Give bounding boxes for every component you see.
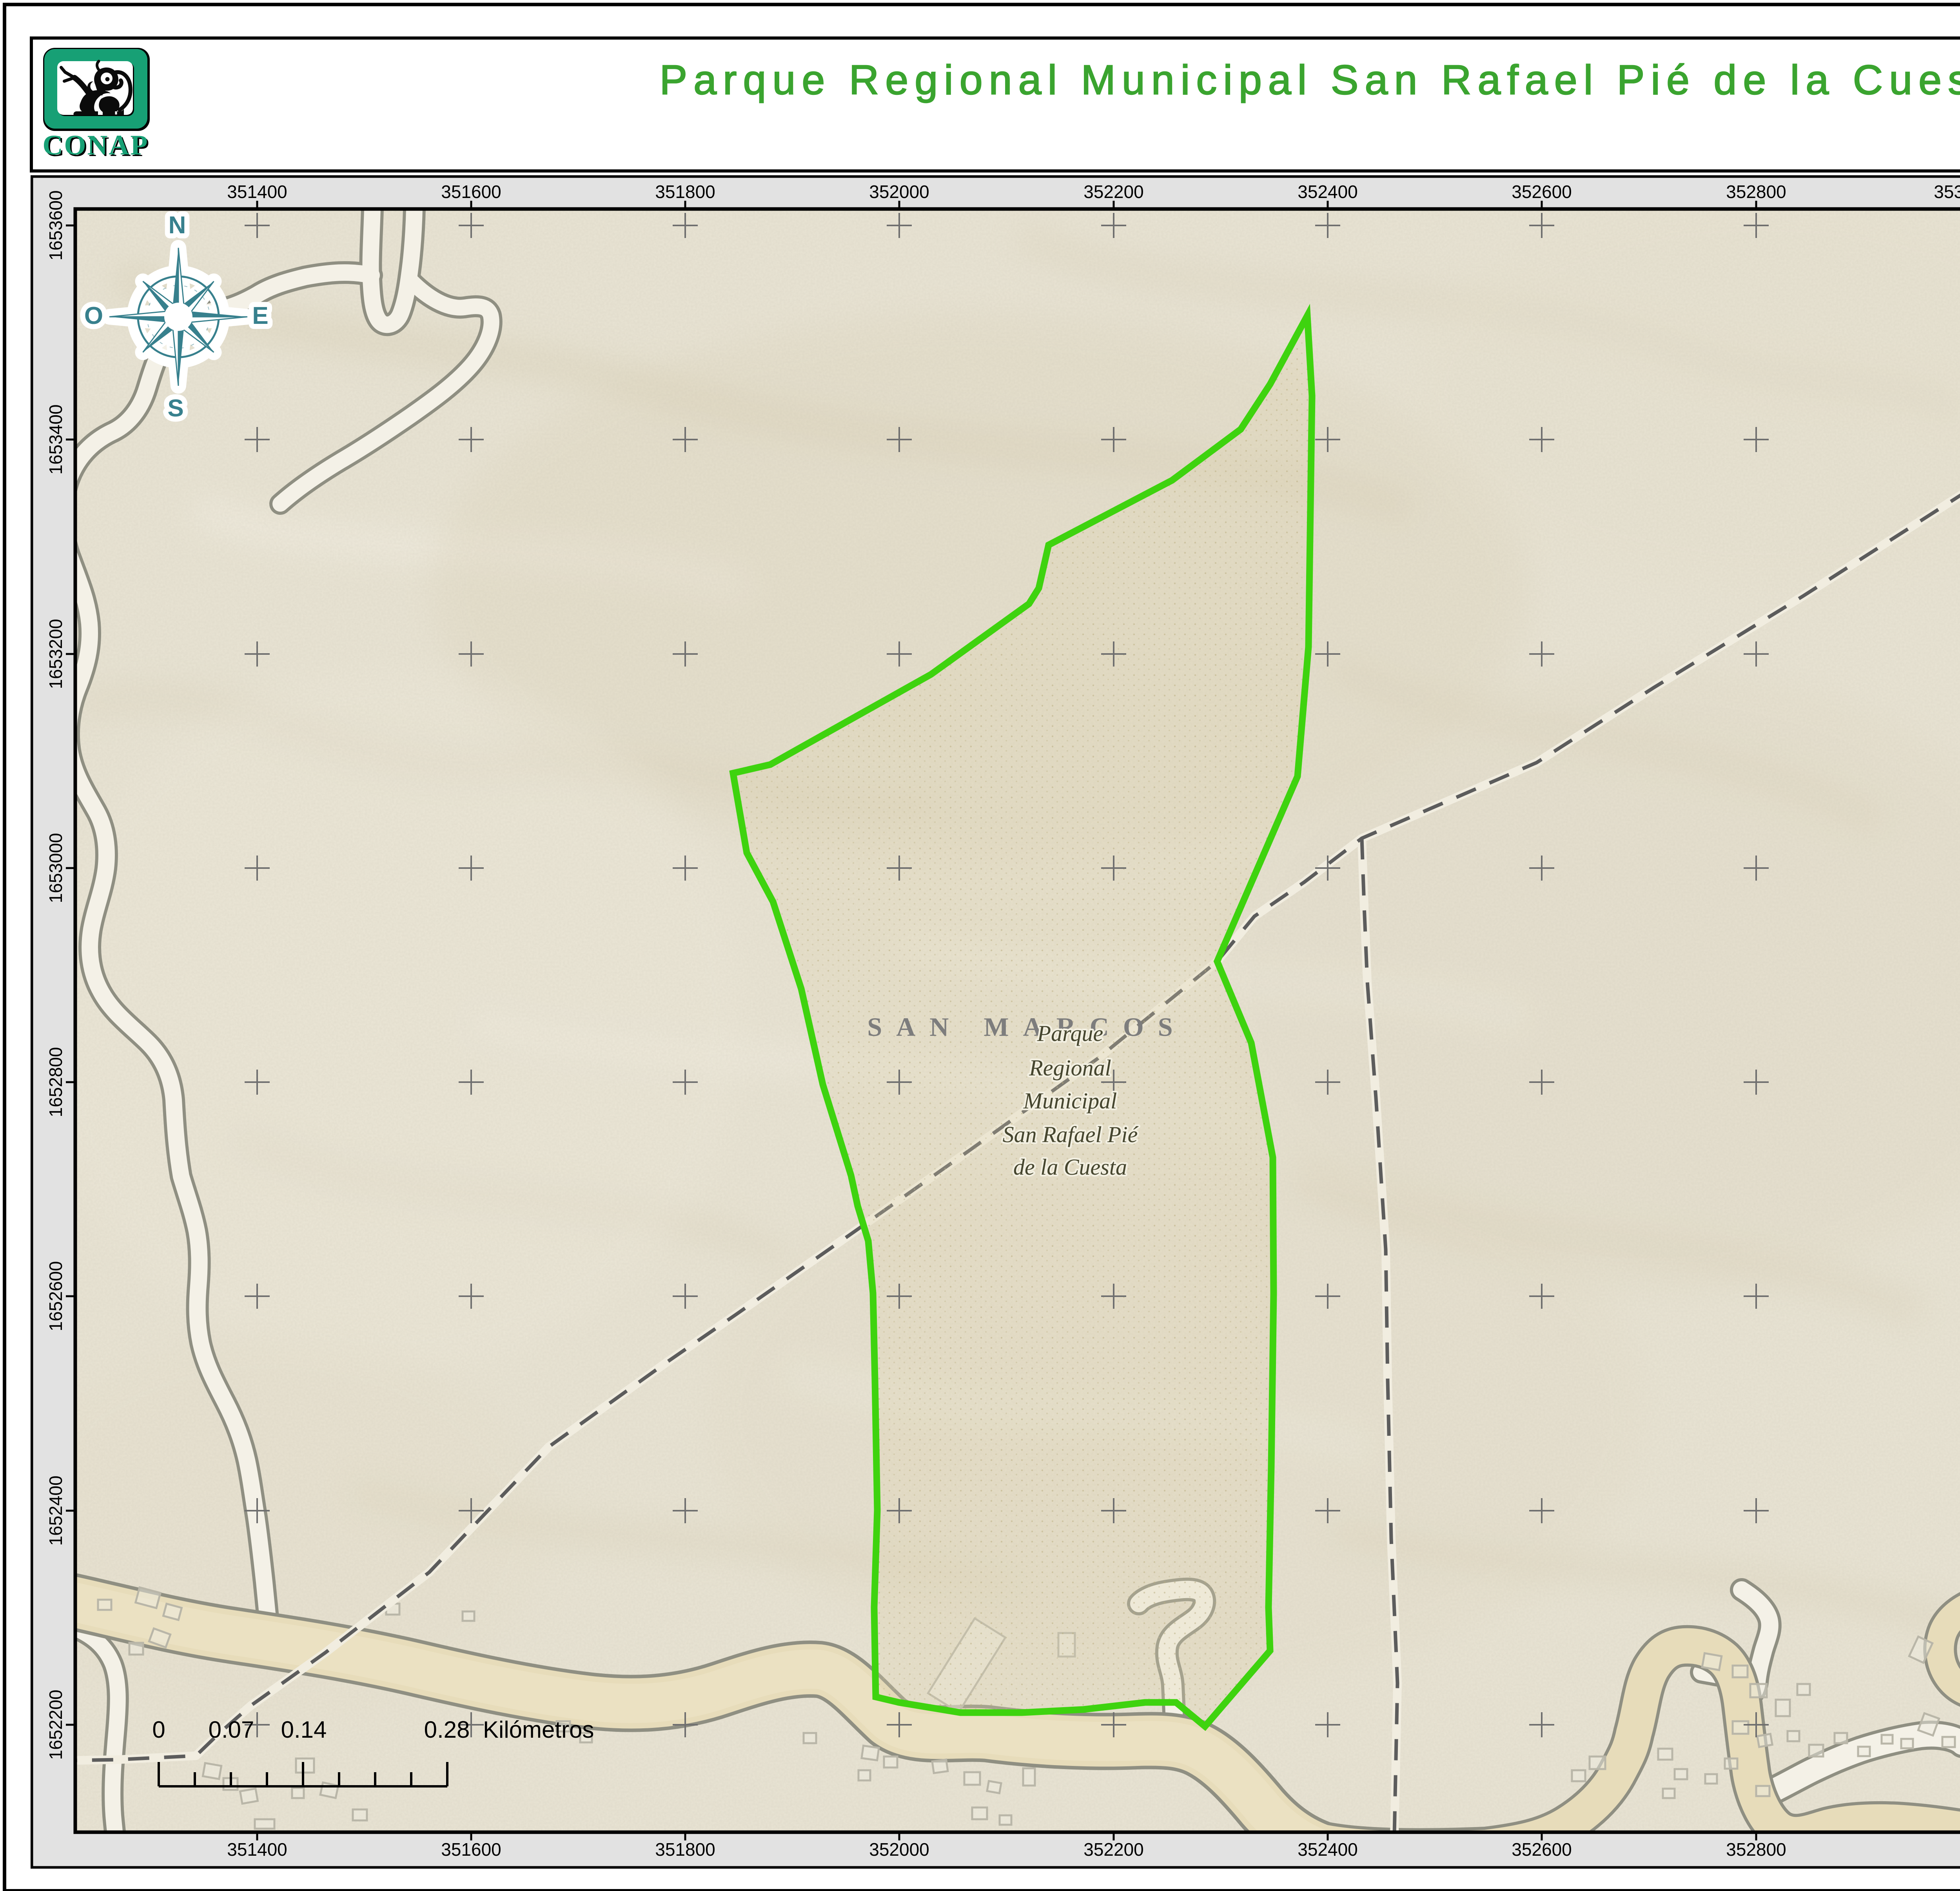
svg-text:Kilómetros: Kilómetros: [483, 1717, 594, 1743]
svg-text:S: S: [167, 395, 183, 422]
svg-text:0.28: 0.28: [424, 1717, 470, 1743]
svg-text:351800: 351800: [655, 182, 715, 202]
svg-text:Regional: Regional: [1029, 1055, 1111, 1081]
svg-text:1653200: 1653200: [45, 619, 66, 689]
svg-text:352200: 352200: [1083, 1839, 1144, 1860]
svg-text:352800: 352800: [1726, 182, 1786, 202]
svg-text:352000: 352000: [869, 1839, 929, 1860]
svg-text:352600: 352600: [1512, 1839, 1572, 1860]
svg-text:351400: 351400: [227, 182, 287, 202]
svg-text:1652600: 1652600: [45, 1261, 66, 1331]
svg-text:de la Cuesta: de la Cuesta: [1013, 1154, 1127, 1180]
svg-text:San Rafael Pié: San Rafael Pié: [1003, 1122, 1139, 1147]
svg-text:352000: 352000: [869, 182, 929, 202]
svg-text:353000: 353000: [1934, 182, 1960, 202]
svg-text:O: O: [84, 302, 103, 329]
svg-text:351800: 351800: [655, 1839, 715, 1860]
svg-text:SAN MARCOS: SAN MARCOS: [867, 1012, 1187, 1042]
svg-text:Parque: Parque: [1037, 1021, 1103, 1046]
svg-text:352800: 352800: [1726, 1839, 1786, 1860]
svg-text:1653000: 1653000: [45, 833, 66, 903]
svg-text:351400: 351400: [227, 1839, 287, 1860]
svg-text:1653600: 1653600: [45, 190, 66, 260]
svg-text:1652800: 1652800: [45, 1047, 66, 1117]
svg-text:0.14: 0.14: [281, 1717, 327, 1743]
svg-text:352200: 352200: [1083, 182, 1144, 202]
svg-text:351600: 351600: [441, 182, 501, 202]
svg-text:351600: 351600: [441, 1839, 501, 1860]
svg-text:CONAP: CONAP: [43, 129, 149, 161]
svg-text:1652400: 1652400: [45, 1475, 66, 1546]
svg-text:352400: 352400: [1298, 182, 1358, 202]
svg-text:352400: 352400: [1298, 1839, 1358, 1860]
svg-text:1652200: 1652200: [45, 1689, 66, 1760]
svg-text:1653400: 1653400: [45, 404, 66, 474]
svg-text:0: 0: [152, 1717, 165, 1743]
svg-text:N: N: [169, 212, 186, 239]
svg-text:E: E: [252, 302, 268, 329]
svg-text:Municipal: Municipal: [1023, 1088, 1117, 1114]
svg-text:352600: 352600: [1512, 182, 1572, 202]
svg-text:0.07: 0.07: [209, 1717, 254, 1743]
